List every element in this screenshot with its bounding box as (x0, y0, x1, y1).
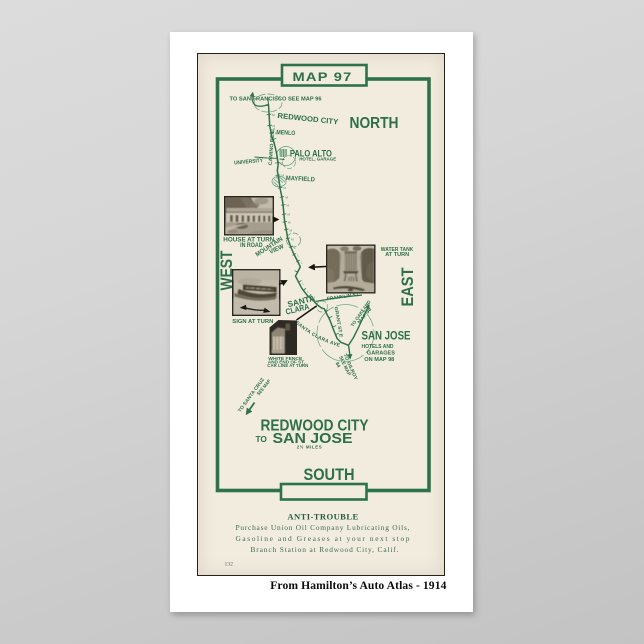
svg-text:AT TURN: AT TURN (385, 252, 409, 258)
svg-text:M: M (284, 186, 287, 190)
svg-text:TO: TO (256, 434, 268, 444)
svg-text:Branch Station at Redwood City: Branch Station at Redwood City, Calif. (251, 545, 399, 554)
svg-text:SANTA CLARA AVE: SANTA CLARA AVE (294, 320, 341, 349)
svg-text:ON MAP 98: ON MAP 98 (364, 357, 394, 363)
svg-text:M: M (272, 113, 275, 117)
svg-text:Purchase Union Oil Company Lub: Purchase Union Oil Company Lubricating O… (236, 523, 410, 532)
svg-text:TO SAN FRANCISCO SEE MAP 96: TO SAN FRANCISCO SEE MAP 96 (230, 97, 322, 103)
svg-text:L: L (303, 282, 305, 286)
svg-text:EAST: EAST (398, 267, 417, 307)
svg-text:HOTEL, GARAGE: HOTEL, GARAGE (299, 157, 336, 162)
svg-text:HOTELS AND: HOTELS AND (362, 344, 394, 350)
svg-text:IN ROAD: IN ROAD (240, 242, 263, 249)
svg-text:NORTH: NORTH (350, 115, 399, 132)
svg-text:M: M (288, 221, 291, 225)
svg-text:Gasoline and Greases at your n: Gasoline and Greases at your next stop (236, 534, 410, 543)
svg-text:SAN JOSE: SAN JOSE (362, 329, 411, 343)
svg-text:L: L (301, 261, 303, 265)
svg-text:SIGN AT TURN: SIGN AT TURN (232, 319, 273, 325)
svg-text:M: M (288, 213, 291, 217)
svg-text:MENLO: MENLO (276, 129, 295, 137)
svg-text:ANTI-TROUBLE: ANTI-TROUBLE (287, 512, 358, 522)
svg-text:REDWOOD CITY: REDWOOD CITY (277, 111, 339, 126)
svg-text:132: 132 (225, 562, 234, 568)
svg-text:L: L (307, 290, 309, 294)
svg-text:43: 43 (265, 103, 269, 107)
svg-text:SOUTH: SOUTH (304, 465, 355, 484)
svg-text:M: M (286, 196, 289, 200)
svg-text:GARAGES: GARAGES (367, 351, 395, 357)
svg-text:M: M (282, 173, 285, 177)
svg-text:M: M (287, 204, 290, 208)
svg-text:CAR LINE AT TURN: CAR LINE AT TURN (267, 363, 308, 368)
svg-text:2½ MILES: 2½ MILES (297, 445, 323, 450)
svg-text:MAYFIELD: MAYFIELD (286, 175, 316, 184)
svg-text:L: L (298, 254, 300, 258)
svg-text:MAP 97: MAP 97 (293, 70, 353, 84)
svg-text:UNIVERSITY: UNIVERSITY (234, 158, 264, 167)
svg-text:M: M (290, 229, 293, 233)
svg-text:M: M (273, 124, 276, 128)
svg-text:M: M (291, 238, 294, 242)
